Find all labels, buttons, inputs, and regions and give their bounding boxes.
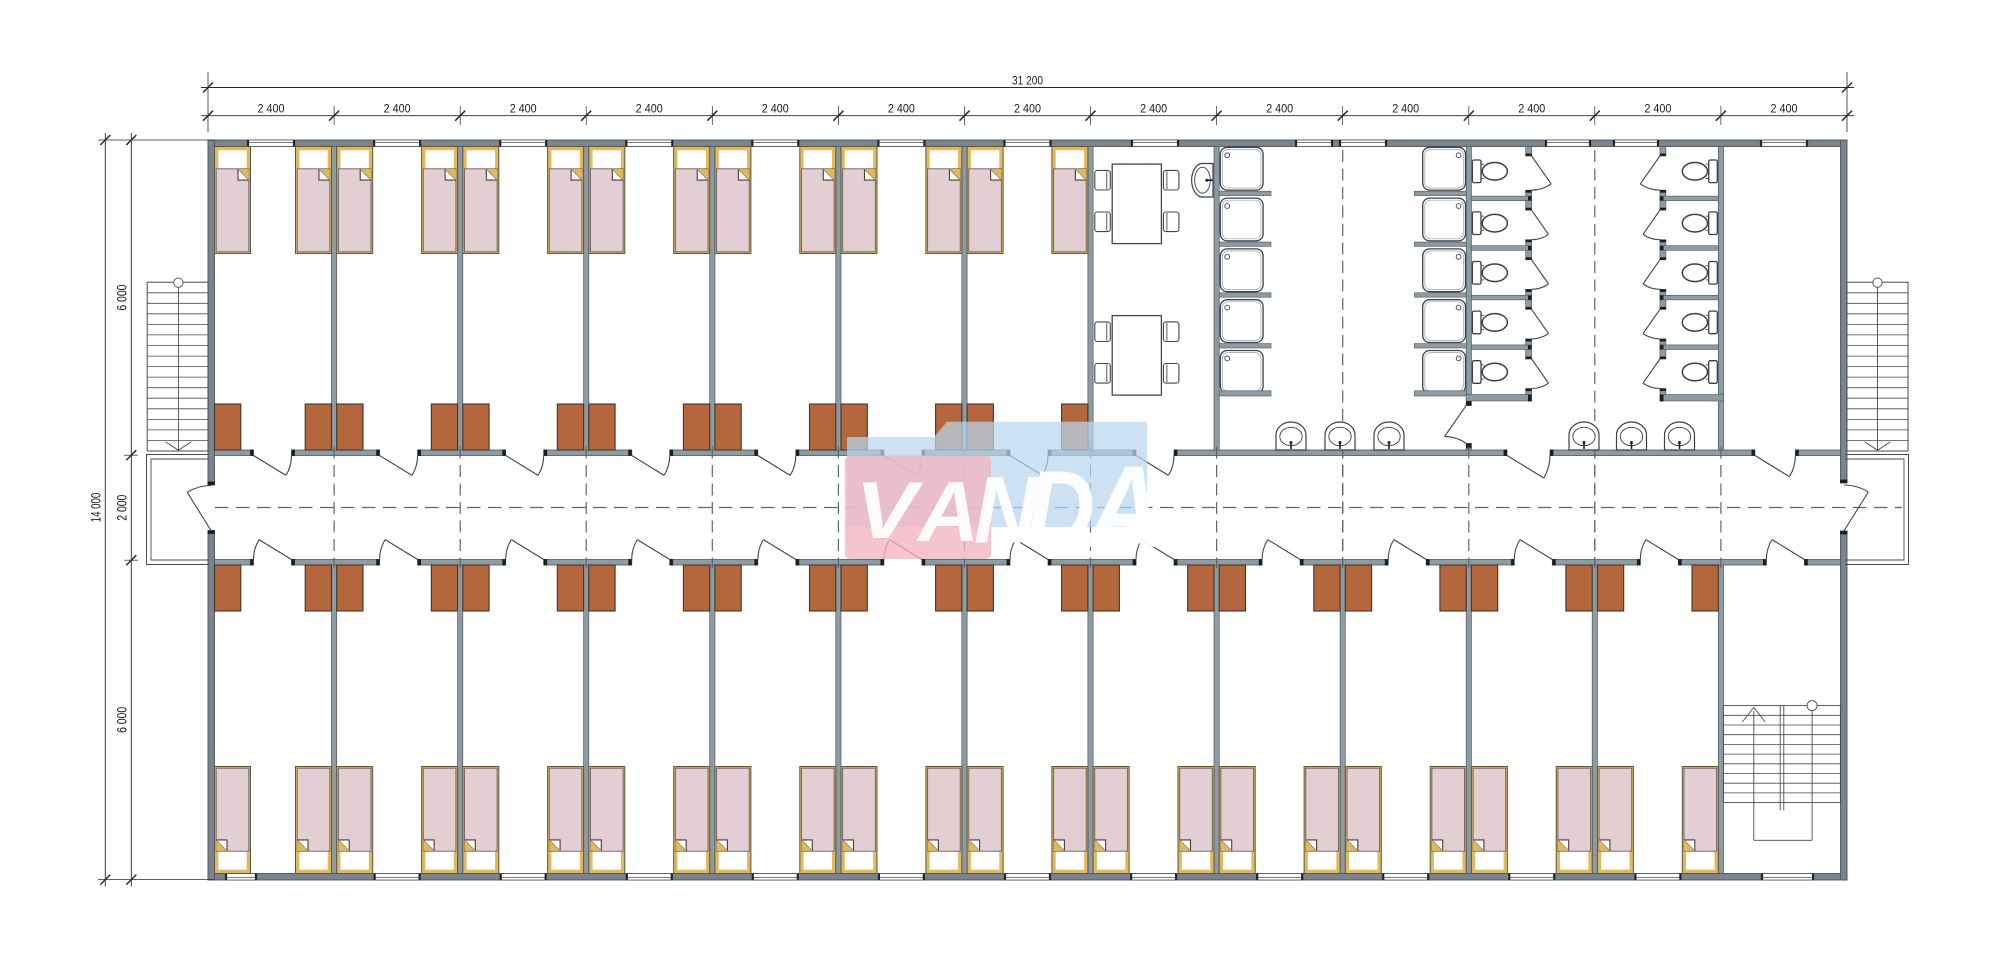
- svg-text:2 400: 2 400: [1014, 104, 1041, 116]
- svg-text:31 200: 31 200: [1012, 76, 1043, 88]
- svg-text:2 400: 2 400: [1266, 104, 1293, 116]
- svg-text:2 400: 2 400: [1518, 104, 1545, 116]
- svg-text:2 400: 2 400: [258, 104, 285, 116]
- svg-text:D: D: [1026, 448, 1095, 568]
- svg-text:2 400: 2 400: [888, 104, 915, 116]
- svg-text:A: A: [916, 465, 979, 560]
- svg-text:2 400: 2 400: [510, 104, 537, 116]
- svg-text:2 400: 2 400: [1140, 104, 1167, 116]
- svg-text:6 000: 6 000: [114, 707, 130, 733]
- svg-text:A: A: [1085, 441, 1162, 572]
- svg-text:6 000: 6 000: [114, 284, 130, 310]
- svg-text:2 400: 2 400: [384, 104, 411, 116]
- svg-text:2 400: 2 400: [1392, 104, 1419, 116]
- svg-text:2 400: 2 400: [636, 104, 663, 116]
- svg-text:2 400: 2 400: [1771, 104, 1798, 116]
- svg-text:V: V: [855, 466, 924, 556]
- svg-text:2 400: 2 400: [1644, 104, 1671, 116]
- svg-text:2 400: 2 400: [762, 104, 789, 116]
- svg-text:14 000: 14 000: [88, 493, 104, 523]
- svg-text:2 000: 2 000: [114, 495, 130, 521]
